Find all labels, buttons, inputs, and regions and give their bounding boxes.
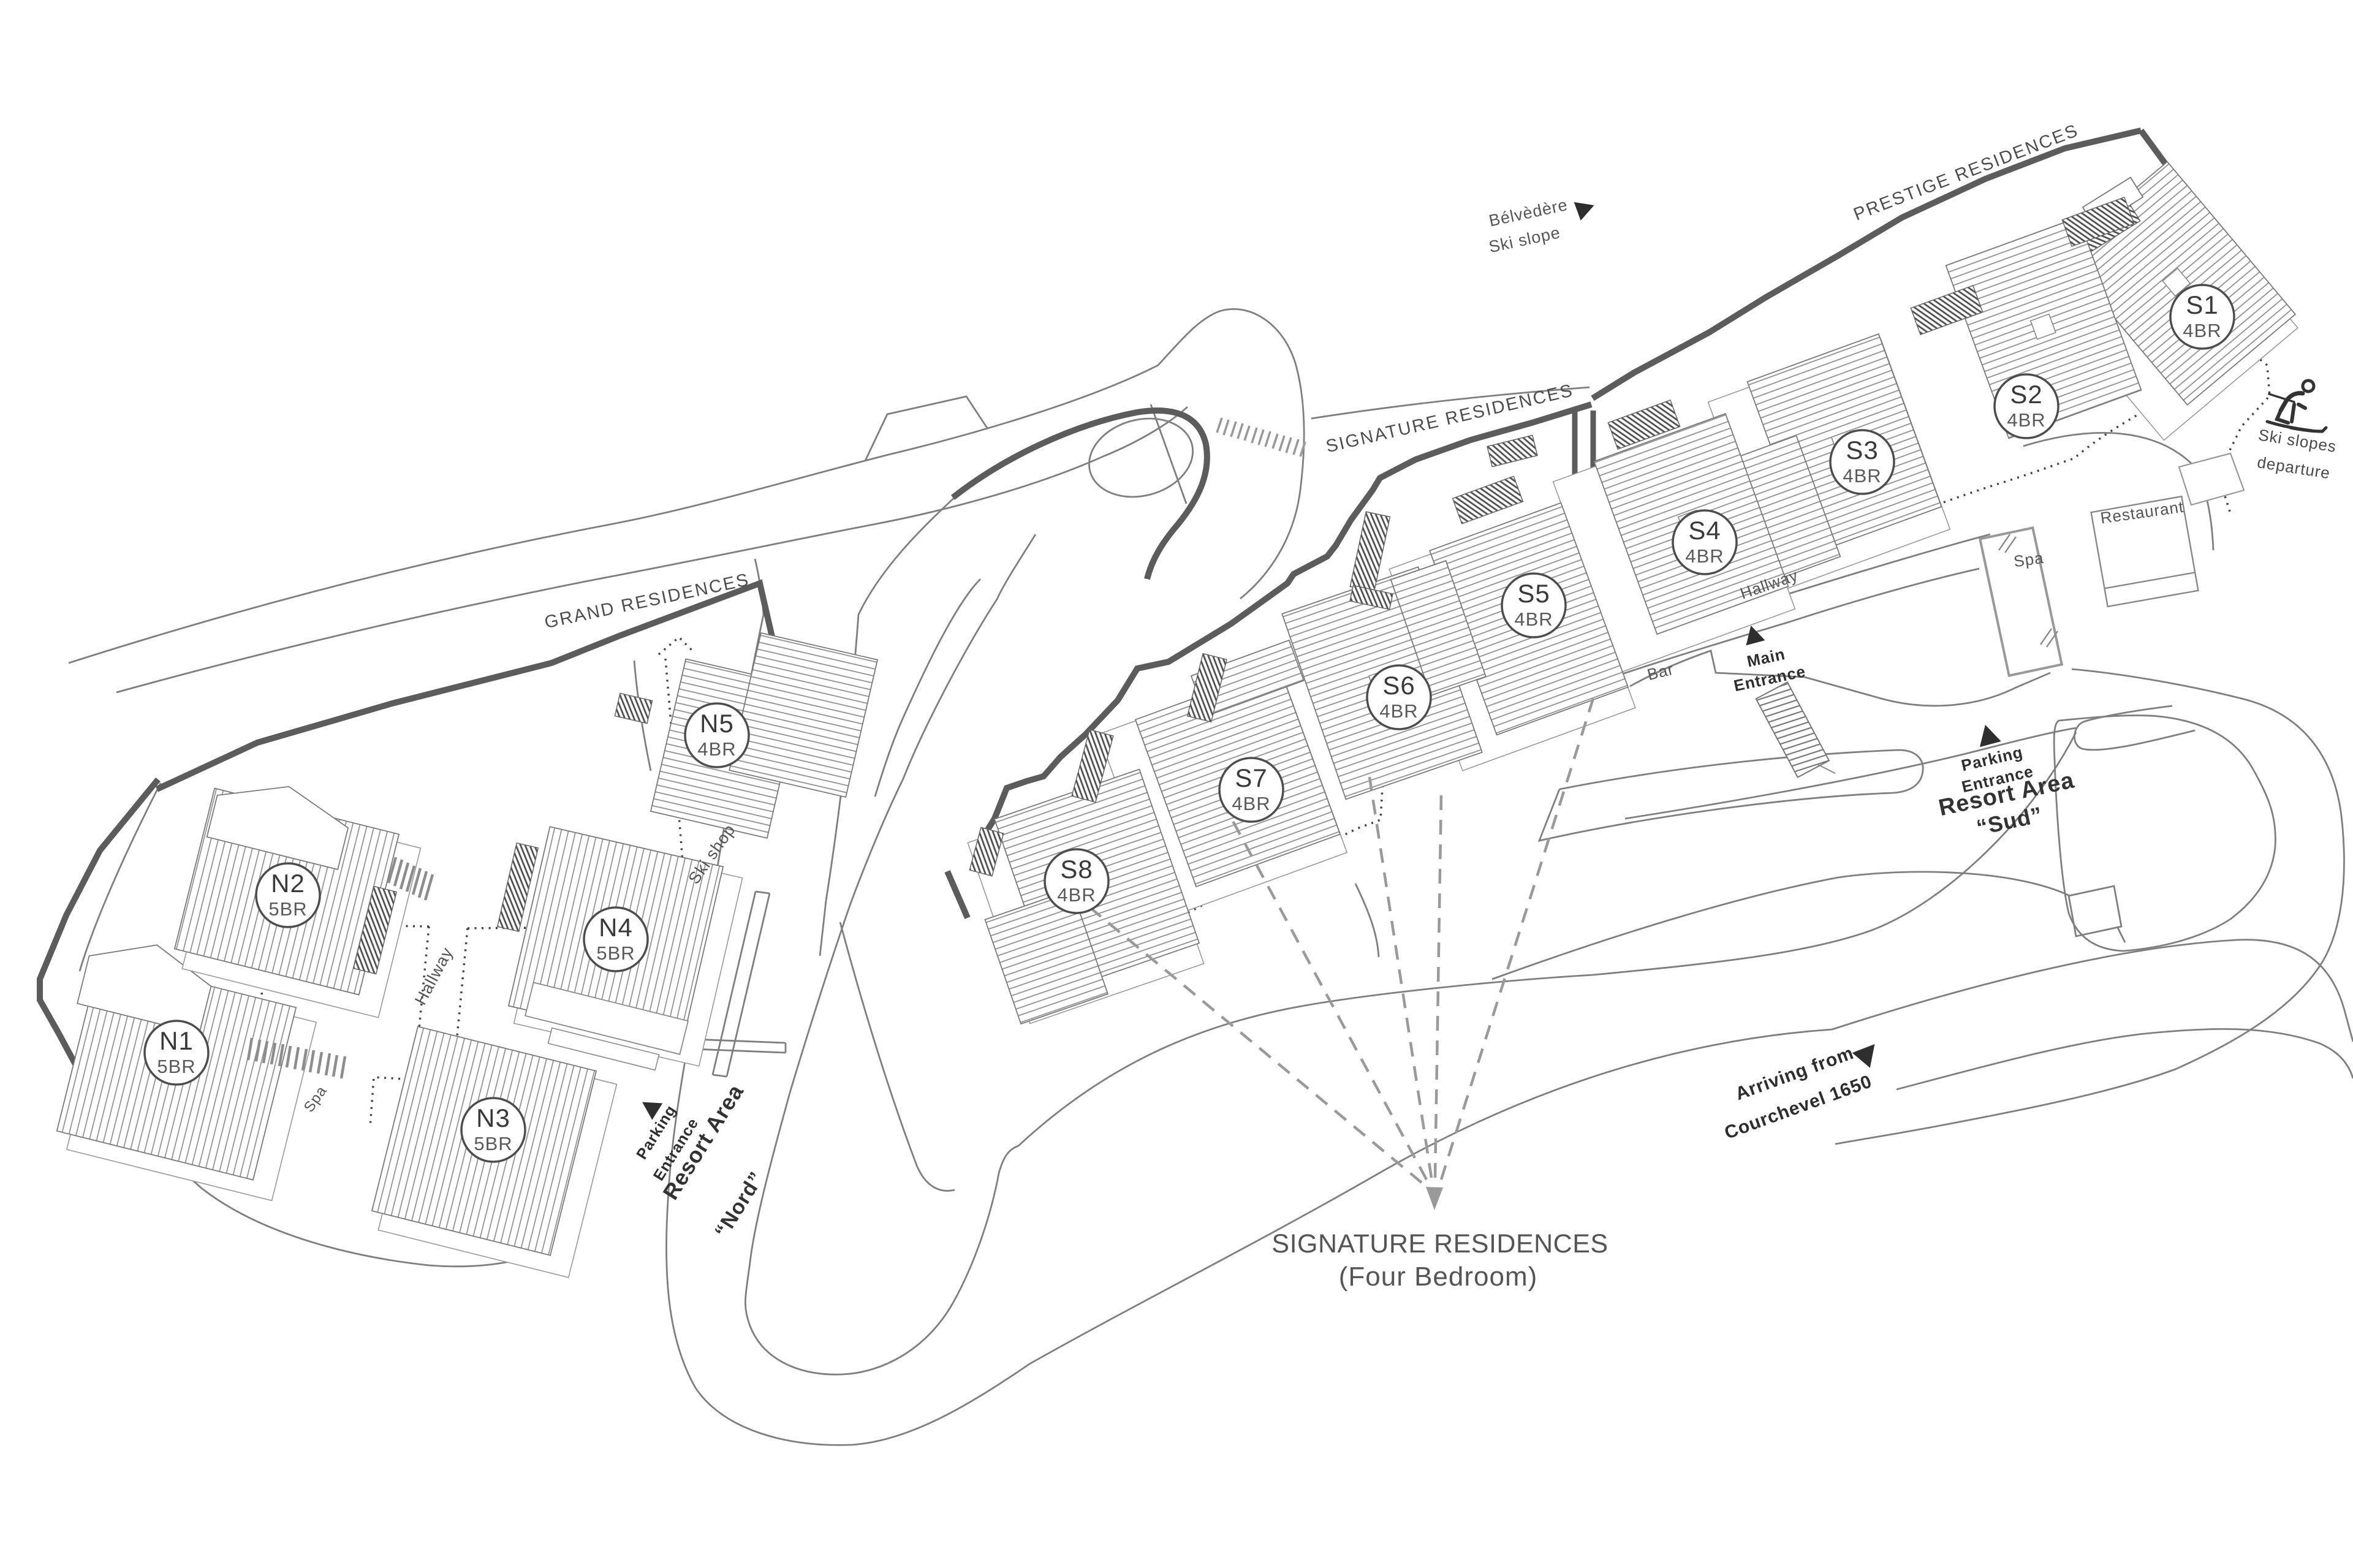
svg-text:S2: S2 [2010,380,2042,409]
svg-text:S1: S1 [2186,290,2218,319]
svg-text:S6: S6 [1382,671,1415,700]
svg-text:S7: S7 [1235,763,1267,792]
svg-text:N4: N4 [599,913,633,942]
svg-text:S5: S5 [1517,579,1550,608]
svg-text:N3: N3 [476,1104,510,1132]
svg-text:(Four Bedroom): (Four Bedroom) [1339,1262,1538,1292]
svg-text:4BR: 4BR [1232,793,1270,814]
svg-text:N2: N2 [271,869,305,898]
svg-text:4BR: 4BR [1379,700,1418,722]
svg-text:N1: N1 [159,1026,194,1055]
svg-text:4BR: 4BR [2183,320,2221,341]
svg-text:4BR: 4BR [1514,608,1553,630]
svg-text:4BR: 4BR [1685,545,1724,567]
svg-text:S8: S8 [1060,855,1093,884]
svg-text:5BR: 5BR [474,1133,512,1154]
svg-text:5BR: 5BR [157,1056,195,1077]
svg-text:4BR: 4BR [1057,884,1096,906]
svg-text:4BR: 4BR [697,738,736,760]
svg-text:4BR: 4BR [1843,465,1881,487]
svg-text:4BR: 4BR [2007,409,2045,431]
svg-text:N5: N5 [700,709,734,738]
svg-text:S3: S3 [1846,436,1878,464]
svg-text:SIGNATURE RESIDENCES: SIGNATURE RESIDENCES [1271,1229,1608,1259]
svg-text:S4: S4 [1688,516,1721,545]
svg-text:5BR: 5BR [596,942,635,964]
svg-text:5BR: 5BR [268,898,307,920]
